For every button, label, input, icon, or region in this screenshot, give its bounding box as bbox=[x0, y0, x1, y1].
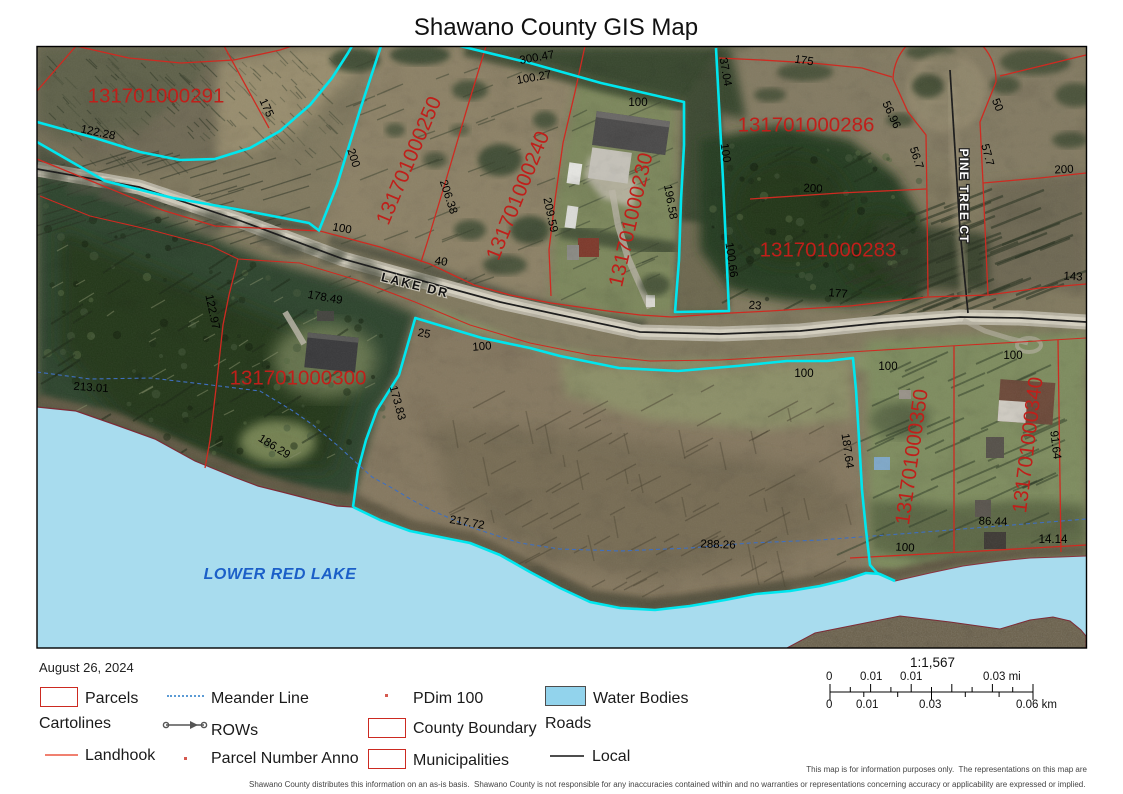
svg-text:200: 200 bbox=[1054, 164, 1074, 177]
svg-text:143: 143 bbox=[1063, 271, 1083, 284]
svg-text:25: 25 bbox=[417, 327, 432, 341]
svg-text:86.44: 86.44 bbox=[978, 516, 1008, 529]
svg-text:288.26: 288.26 bbox=[700, 538, 736, 551]
svg-text:131701000283: 131701000283 bbox=[760, 238, 897, 261]
svg-text:131701000291: 131701000291 bbox=[88, 84, 225, 107]
svg-text:131701000300: 131701000300 bbox=[230, 366, 367, 389]
svg-text:PINE TREE CT: PINE TREE CT bbox=[957, 149, 971, 244]
svg-text:100: 100 bbox=[878, 361, 897, 373]
svg-text:200: 200 bbox=[803, 183, 823, 196]
svg-text:LOWER RED LAKE: LOWER RED LAKE bbox=[204, 566, 358, 583]
svg-text:14.14: 14.14 bbox=[1039, 534, 1068, 546]
svg-text:177: 177 bbox=[828, 287, 848, 301]
svg-text:100: 100 bbox=[628, 97, 647, 109]
svg-text:100: 100 bbox=[895, 542, 915, 555]
svg-text:100: 100 bbox=[472, 340, 492, 353]
svg-text:100: 100 bbox=[1003, 350, 1022, 362]
svg-text:40: 40 bbox=[434, 255, 448, 269]
svg-text:131701000286: 131701000286 bbox=[738, 113, 875, 136]
svg-text:213.01: 213.01 bbox=[73, 381, 109, 395]
svg-text:23: 23 bbox=[748, 299, 762, 312]
svg-text:100: 100 bbox=[794, 368, 813, 380]
